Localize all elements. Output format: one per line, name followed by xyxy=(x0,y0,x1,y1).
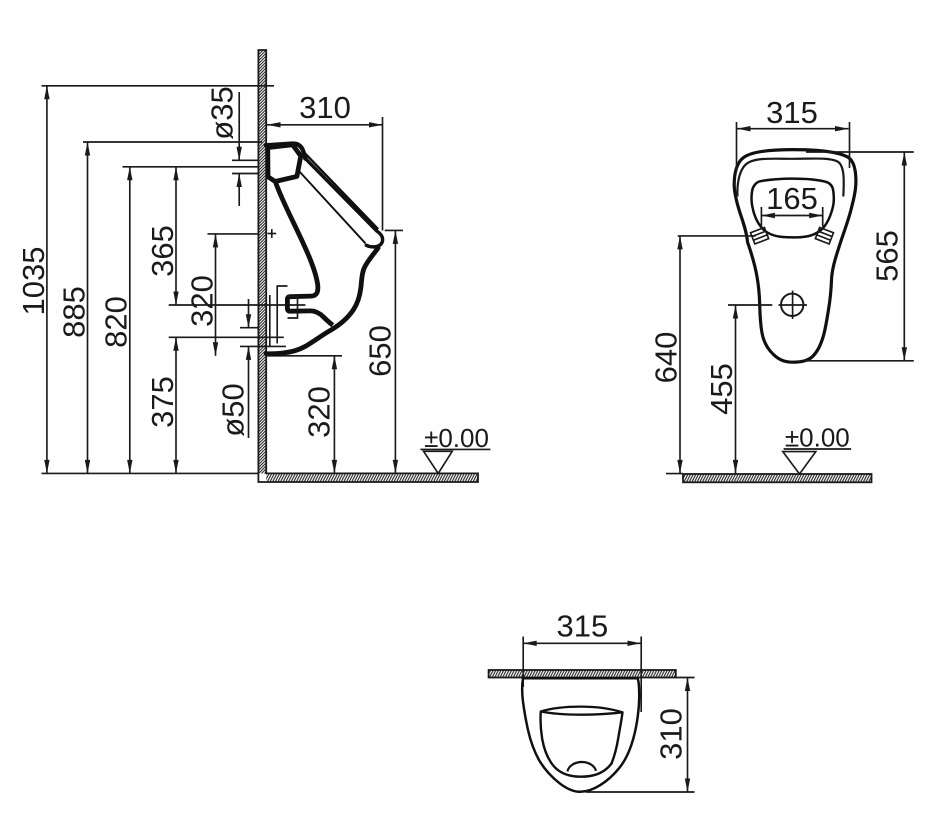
svg-text:320: 320 xyxy=(302,386,337,438)
svg-text:315: 315 xyxy=(766,95,818,130)
svg-text:ø50: ø50 xyxy=(216,383,251,436)
svg-text:ø35: ø35 xyxy=(205,86,240,139)
svg-text:455: 455 xyxy=(704,363,739,415)
svg-text:565: 565 xyxy=(870,230,905,282)
svg-text:820: 820 xyxy=(99,296,134,348)
svg-text:1035: 1035 xyxy=(16,247,51,316)
svg-text:320: 320 xyxy=(184,275,219,327)
svg-text:165: 165 xyxy=(766,181,818,216)
svg-text:885: 885 xyxy=(57,286,92,338)
svg-text:±0.00: ±0.00 xyxy=(424,423,489,453)
svg-text:310: 310 xyxy=(299,90,351,125)
svg-text:640: 640 xyxy=(649,332,684,384)
svg-text:315: 315 xyxy=(557,609,609,644)
svg-text:365: 365 xyxy=(145,225,180,277)
svg-text:650: 650 xyxy=(363,325,398,377)
svg-text:375: 375 xyxy=(145,376,180,428)
svg-text:310: 310 xyxy=(654,708,689,760)
svg-text:±0.00: ±0.00 xyxy=(785,423,850,453)
